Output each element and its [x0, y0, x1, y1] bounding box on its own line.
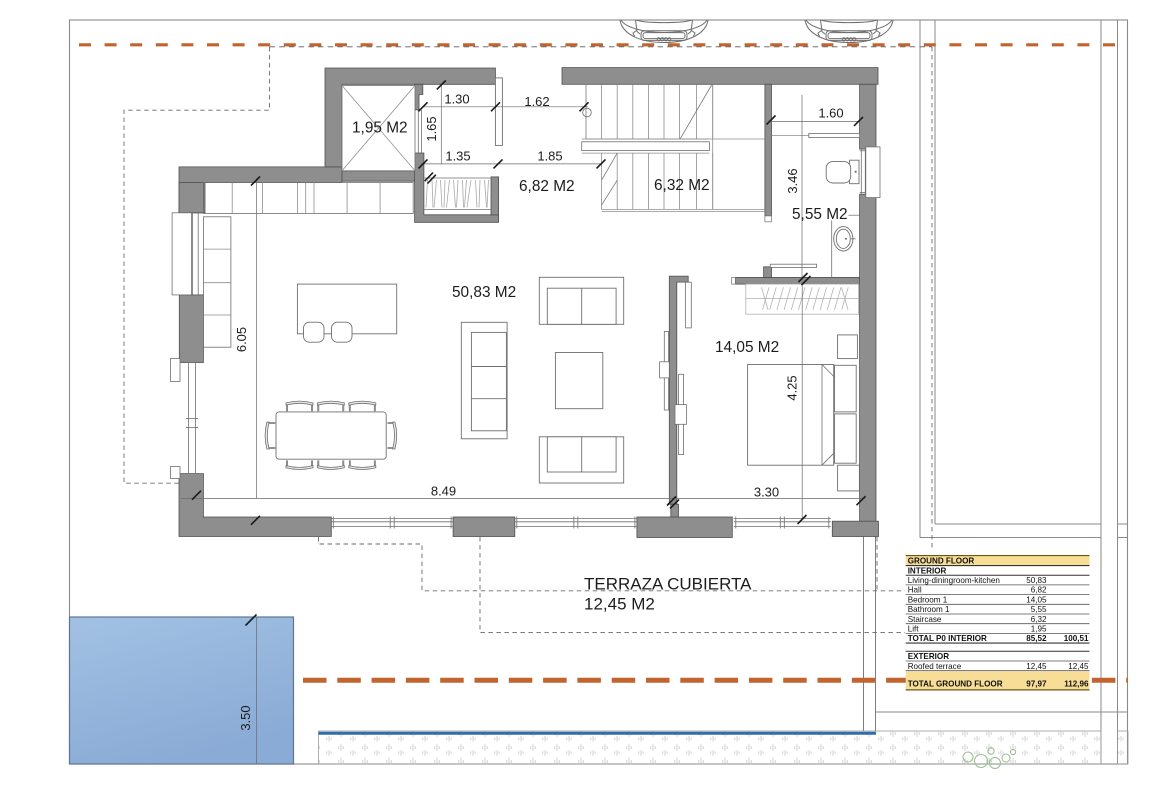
svg-text:5,55 M2: 5,55 M2 — [792, 206, 848, 223]
svg-text:3.30: 3.30 — [754, 485, 779, 500]
svg-text:Bathroom 1: Bathroom 1 — [908, 605, 950, 614]
svg-text:GROUND FLOOR: GROUND FLOOR — [908, 557, 975, 566]
svg-text:12,45: 12,45 — [1068, 662, 1089, 671]
svg-text:8.49: 8.49 — [431, 484, 456, 499]
svg-text:14,05: 14,05 — [1026, 595, 1047, 604]
svg-text:5,55: 5,55 — [1031, 605, 1047, 614]
svg-text:Lift: Lift — [908, 625, 920, 634]
svg-text:14,05 M2: 14,05 M2 — [715, 339, 779, 356]
svg-text:6,32: 6,32 — [1031, 615, 1047, 624]
svg-text:TOTAL GROUND FLOOR: TOTAL GROUND FLOOR — [908, 680, 1003, 689]
svg-text:50,83: 50,83 — [1026, 576, 1047, 585]
svg-text:EXTERIOR: EXTERIOR — [908, 652, 950, 661]
svg-text:Bedroom 1: Bedroom 1 — [908, 595, 948, 604]
svg-text:TERRAZA CUBIERTA: TERRAZA CUBIERTA — [584, 575, 752, 594]
svg-text:1.65: 1.65 — [424, 116, 439, 141]
svg-text:112,96: 112,96 — [1064, 680, 1089, 689]
svg-text:3.50: 3.50 — [238, 705, 253, 730]
svg-text:1.60: 1.60 — [818, 106, 843, 121]
svg-text:4.25: 4.25 — [785, 375, 800, 400]
svg-text:INTERIOR: INTERIOR — [908, 566, 947, 575]
svg-text:6.05: 6.05 — [234, 327, 249, 352]
svg-text:6,82: 6,82 — [1031, 586, 1047, 595]
svg-text:12,45: 12,45 — [1026, 662, 1047, 671]
svg-text:6,82 M2: 6,82 M2 — [519, 178, 575, 195]
svg-text:12,45 M2: 12,45 M2 — [584, 595, 655, 614]
svg-text:3.46: 3.46 — [785, 168, 800, 193]
svg-text:1.85: 1.85 — [537, 149, 562, 164]
svg-text:1,95 M2: 1,95 M2 — [352, 120, 408, 137]
svg-text:1.62: 1.62 — [524, 94, 549, 109]
svg-text:6,32 M2: 6,32 M2 — [654, 177, 710, 194]
svg-text:Living-diningroom-kitchen: Living-diningroom-kitchen — [908, 576, 1000, 585]
svg-text:Staircase: Staircase — [908, 615, 942, 624]
svg-text:85,52: 85,52 — [1026, 634, 1047, 643]
svg-text:Roofed terrace: Roofed terrace — [908, 662, 962, 671]
svg-text:Hall: Hall — [908, 586, 922, 595]
svg-text:1.30: 1.30 — [444, 92, 469, 107]
svg-text:1.35: 1.35 — [445, 149, 470, 164]
svg-text:97,97: 97,97 — [1026, 680, 1047, 689]
svg-text:1,95: 1,95 — [1031, 625, 1047, 634]
svg-text:50,83 M2: 50,83 M2 — [452, 284, 516, 301]
svg-text:100,51: 100,51 — [1064, 634, 1089, 643]
svg-text:TOTAL P0 INTERIOR: TOTAL P0 INTERIOR — [908, 634, 987, 643]
